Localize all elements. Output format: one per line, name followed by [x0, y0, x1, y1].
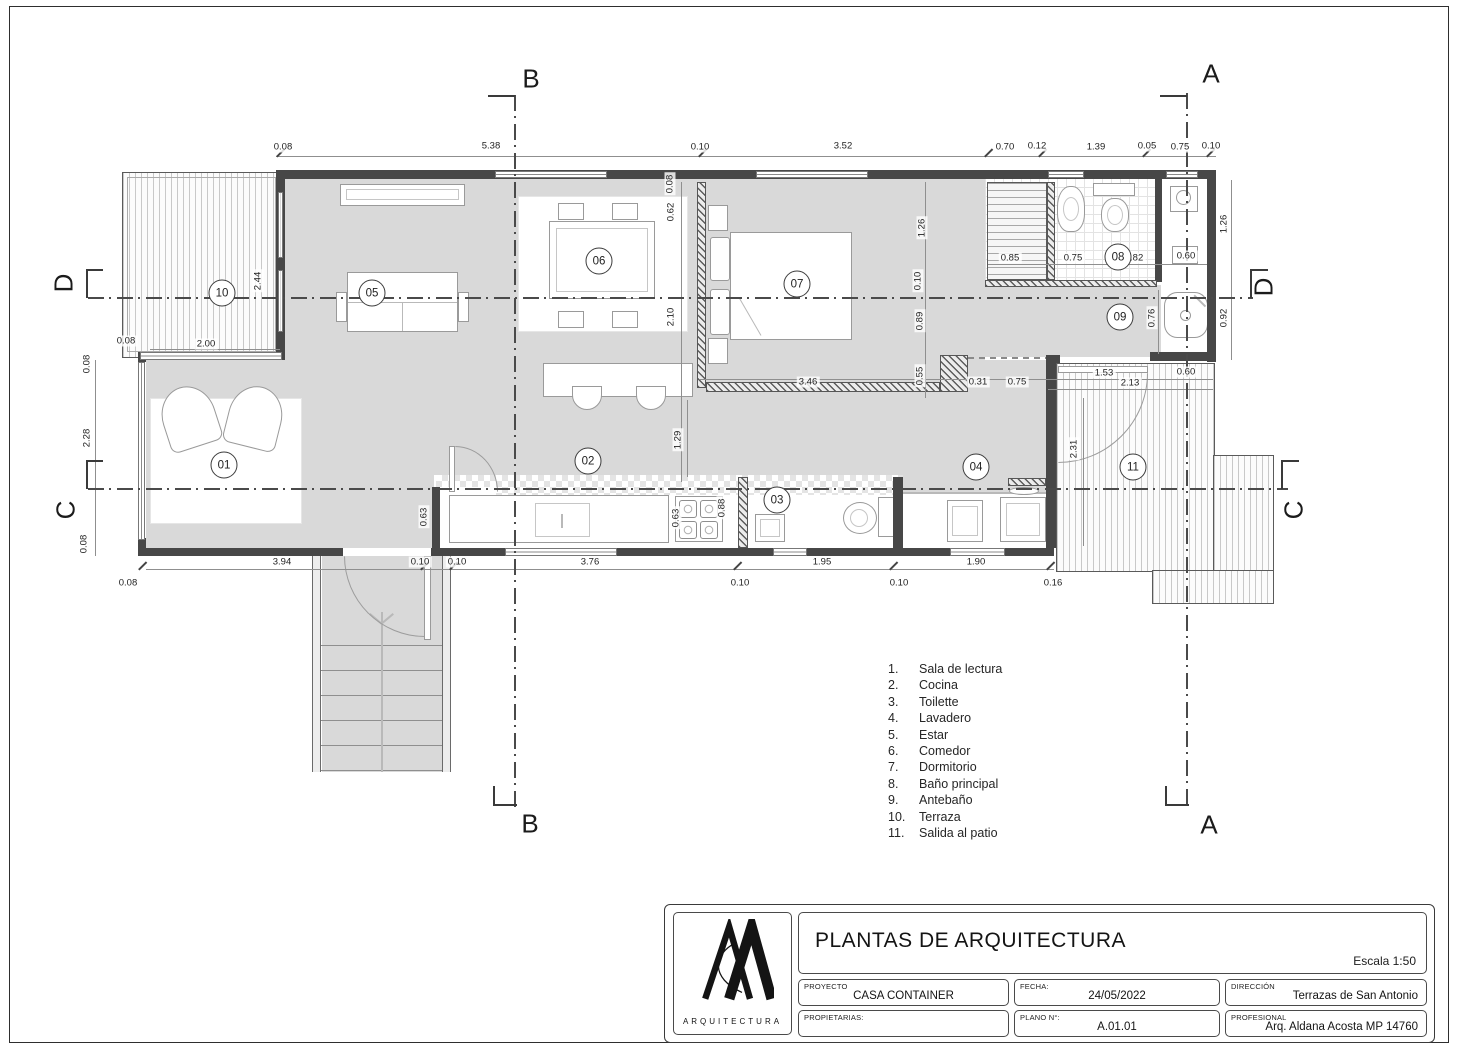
sheet-title: PLANTAS DE ARQUITECTURA — [815, 929, 1126, 953]
legend-item: 8.Baño principal — [888, 776, 1002, 792]
legend-label: Cocina — [919, 677, 958, 693]
field-profesional: PROFESIONAL Arq. Aldana Acosta MP 14760 — [1225, 1010, 1427, 1037]
section-letter: B — [522, 64, 539, 95]
legend-number: 10. — [888, 809, 919, 825]
section-letter: A — [1200, 810, 1217, 841]
title-box: PLANTAS DE ARQUITECTURA Escala 1:50 — [798, 912, 1427, 974]
legend-item: 3.Toilette — [888, 694, 1002, 710]
legend-item: 10.Terraza — [888, 809, 1002, 825]
aa-logo — [694, 919, 774, 1005]
field-label: PROPIETARIAS: — [804, 1013, 864, 1022]
section-letter: A — [1202, 59, 1219, 90]
legend-item: 6.Comedor — [888, 743, 1002, 759]
legend-label: Dormitorio — [919, 759, 977, 775]
legend-number: 5. — [888, 727, 919, 743]
scale-note: Escala 1:50 — [1353, 954, 1416, 968]
legend-number: 6. — [888, 743, 919, 759]
room-legend: 1.Sala de lectura2.Cocina3.Toilette4.Lav… — [888, 661, 1002, 841]
section-letter: C — [1279, 501, 1310, 520]
floor-plan: 0.085.380.103.520.700.121.390.050.750.10… — [0, 0, 1458, 1049]
field-value: CASA CONTAINER — [799, 990, 1008, 1002]
legend-number: 7. — [888, 759, 919, 775]
field-plano-n: PLANO N°: A.01.01 — [1014, 1010, 1220, 1037]
logo-box: ARQUITECTURA — [673, 912, 792, 1035]
legend-number: 4. — [888, 710, 919, 726]
field-direccion: DIRECCIÓN Terrazas de San Antonio — [1225, 979, 1427, 1006]
legend-number: 2. — [888, 677, 919, 693]
logo-word: ARQUITECTURA — [674, 1017, 791, 1026]
legend-label: Antebaño — [919, 792, 973, 808]
field-value: 24/05/2022 — [1015, 990, 1219, 1002]
legend-item: 1.Sala de lectura — [888, 661, 1002, 677]
legend-item: 9.Antebaño — [888, 792, 1002, 808]
legend-number: 3. — [888, 694, 919, 710]
legend-label: Salida al patio — [919, 825, 998, 841]
legend-number: 1. — [888, 661, 919, 677]
field-proyecto: PROYECTO CASA CONTAINER — [798, 979, 1009, 1006]
field-propietarias: PROPIETARIAS: — [798, 1010, 1009, 1037]
legend-item: 7.Dormitorio — [888, 759, 1002, 775]
legend-number: 8. — [888, 776, 919, 792]
legend-label: Terraza — [919, 809, 961, 825]
legend-label: Baño principal — [919, 776, 998, 792]
field-value: A.01.01 — [1015, 1021, 1219, 1033]
legend-number: 9. — [888, 792, 919, 808]
legend-label: Comedor — [919, 743, 970, 759]
legend-label: Estar — [919, 727, 948, 743]
section-letter: B — [521, 809, 538, 840]
section-letter-layer: BABADCDC — [0, 0, 1458, 1049]
title-block: ARQUITECTURA PLANTAS DE ARQUITECTURA Esc… — [664, 904, 1435, 1043]
section-letter: D — [1249, 278, 1280, 297]
field-fecha: FECHA: 24/05/2022 — [1014, 979, 1220, 1006]
legend-item: 2.Cocina — [888, 677, 1002, 693]
section-letter: C — [51, 501, 82, 520]
legend-number: 11. — [888, 825, 919, 841]
legend-item: 5.Estar — [888, 727, 1002, 743]
architectural-plan-sheet: 0.085.380.103.520.700.121.390.050.750.10… — [0, 0, 1458, 1049]
legend-label: Lavadero — [919, 710, 971, 726]
field-value: Arq. Aldana Acosta MP 14760 — [1226, 1021, 1426, 1033]
field-value: Terrazas de San Antonio — [1226, 990, 1426, 1002]
legend-label: Toilette — [919, 694, 959, 710]
legend-label: Sala de lectura — [919, 661, 1002, 677]
legend-item: 4.Lavadero — [888, 710, 1002, 726]
section-letter: D — [49, 274, 80, 293]
legend-item: 11.Salida al patio — [888, 825, 1002, 841]
